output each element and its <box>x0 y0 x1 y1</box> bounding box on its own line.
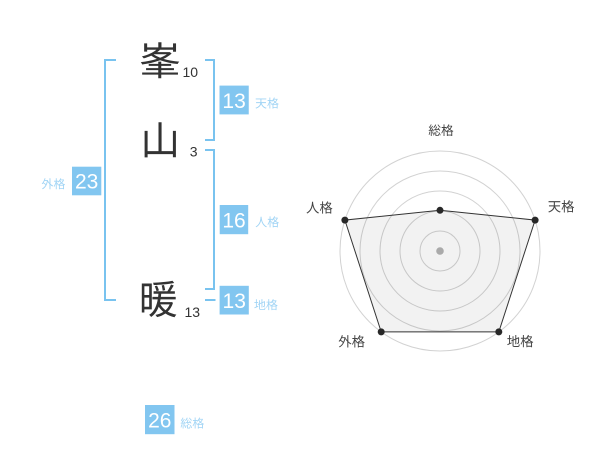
svg-text:23: 23 <box>75 171 98 194</box>
svg-text:13: 13 <box>223 290 246 313</box>
svg-text:16: 16 <box>222 210 245 233</box>
svg-text:26: 26 <box>148 410 171 433</box>
svg-text:13: 13 <box>222 90 245 113</box>
svg-text:13: 13 <box>185 304 201 320</box>
svg-text:3: 3 <box>190 144 198 160</box>
svg-text:10: 10 <box>183 64 199 80</box>
